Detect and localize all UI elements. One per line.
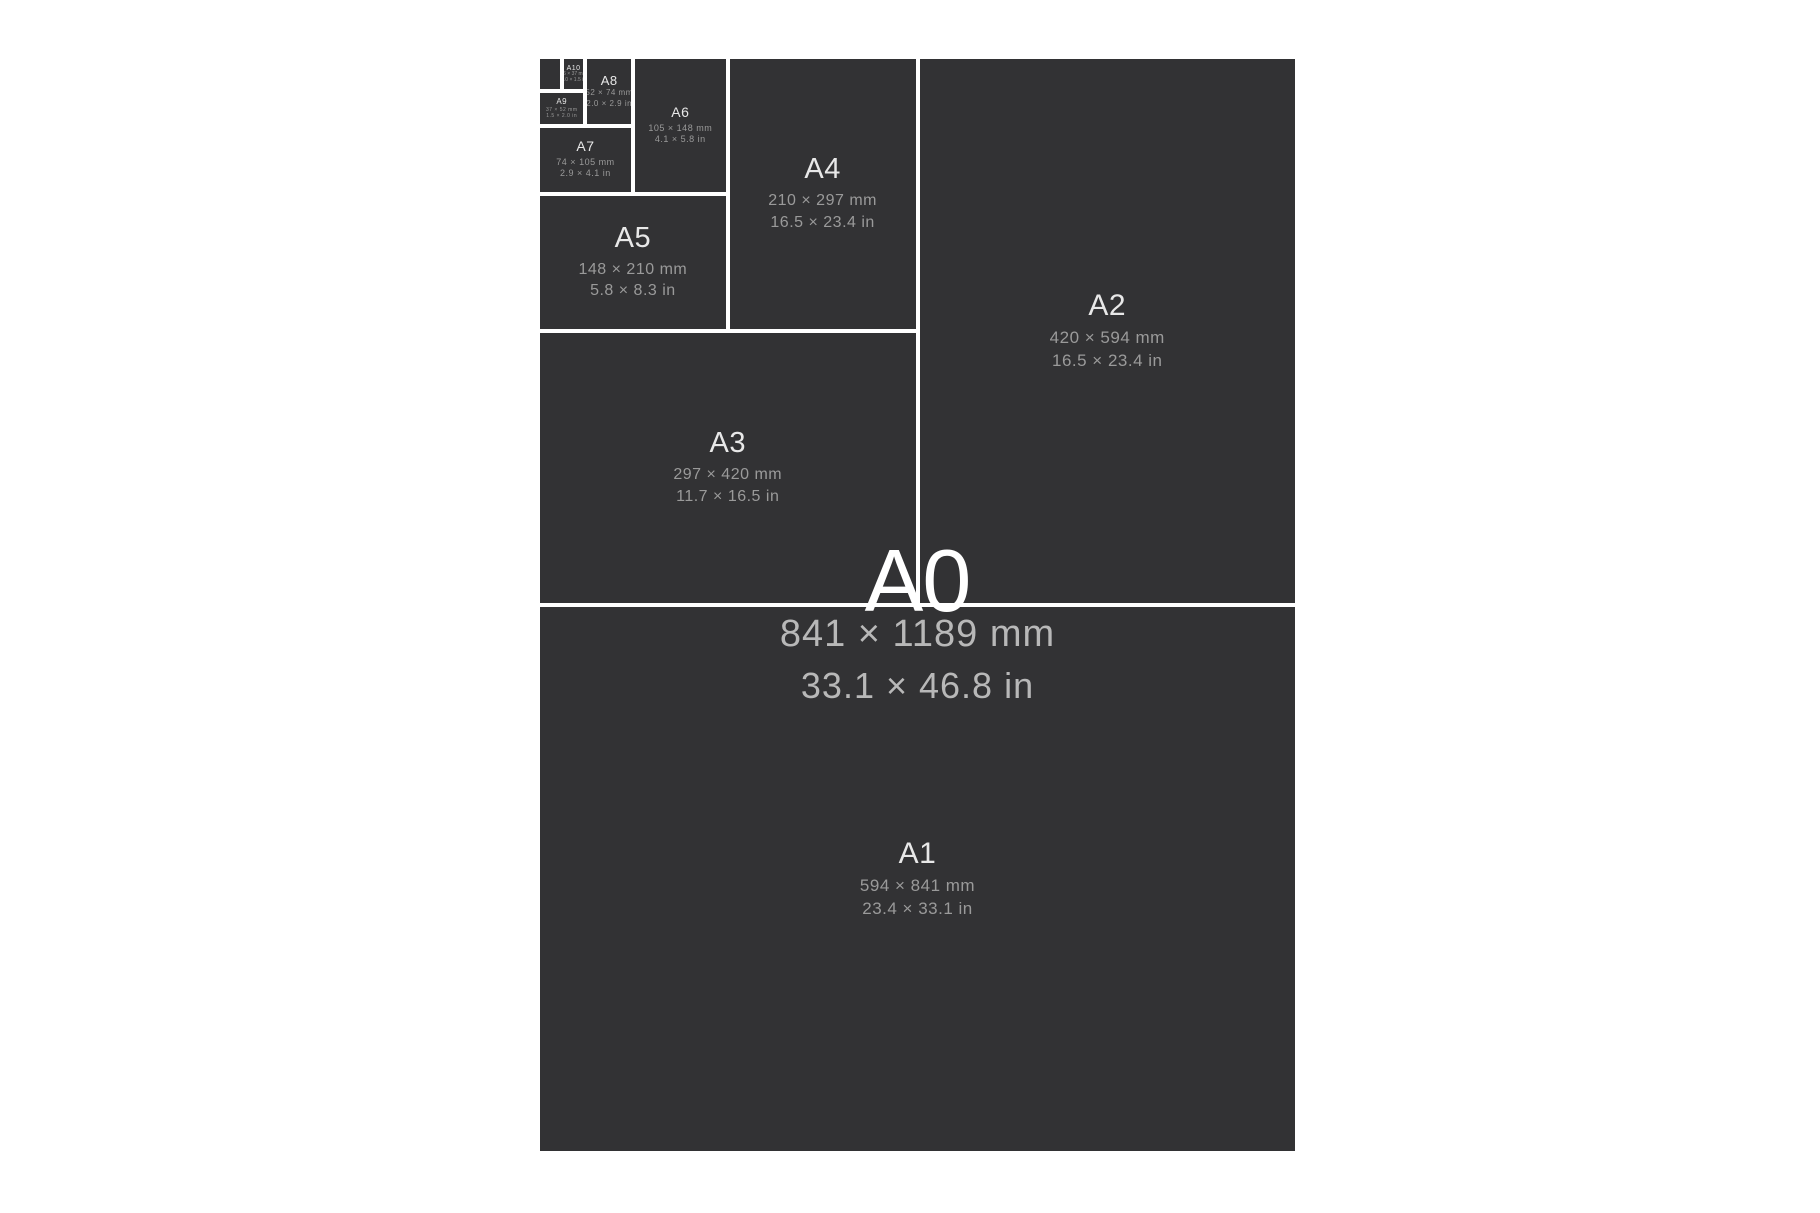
sheet-a7-label: A7: [576, 139, 594, 154]
a-series-paper-size-diagram: A1 594 × 841 mm 23.4 × 33.1 in A2 420 × …: [538, 57, 1297, 1153]
sheet-a2-label: A2: [1088, 289, 1126, 324]
sheet-a4-label: A4: [804, 154, 840, 186]
sheet-a7-inches: 2.9 × 4.1 in: [560, 168, 611, 180]
sheet-smallest-unlabeled: [538, 57, 562, 91]
sheet-a8-label: A8: [601, 74, 618, 88]
sheet-a9-label: A9: [556, 98, 567, 107]
sheet-a0-label: A0: [865, 537, 971, 625]
sheet-a7: A7 74 × 105 mm 2.9 × 4.1 in: [538, 126, 633, 195]
sheet-a2-inches: 16.5 × 23.4 in: [1052, 350, 1163, 373]
sheet-a2: A2 420 × 594 mm 16.5 × 23.4 in: [918, 57, 1298, 605]
sheet-a10-inches: 1.0 × 1.5 in: [562, 78, 586, 84]
sheet-a8-mm: 52 × 74 mm: [585, 88, 632, 98]
sheet-a8: A8 52 × 74 mm 2.0 × 2.9 in: [585, 57, 632, 126]
sheet-a6-mm: 105 × 148 mm: [648, 123, 712, 135]
sheet-a10: A10 26 × 37 mm 1.0 × 1.5 in: [562, 57, 586, 91]
sheet-a2-mm: 420 × 594 mm: [1050, 327, 1165, 350]
sheet-a0-inches: 33.1 × 46.8 in: [801, 665, 1034, 707]
sheet-a3: A3 297 × 420 mm 11.7 × 16.5 in: [538, 331, 918, 605]
sheet-a6-label: A6: [671, 105, 689, 120]
sheet-a3-mm: 297 × 420 mm: [673, 464, 782, 486]
sheet-a5-label: A5: [615, 223, 651, 255]
sheet-a6: A6 105 × 148 mm 4.1 × 5.8 in: [633, 57, 728, 194]
sheet-a5-inches: 5.8 × 8.3 in: [590, 280, 676, 302]
sheet-a9: A9 37 × 52 mm 1.5 × 2.0 in: [538, 91, 585, 125]
sheet-a7-mm: 74 × 105 mm: [556, 157, 614, 169]
sheet-a3-inches: 11.7 × 16.5 in: [676, 486, 779, 508]
sheet-a3-label: A3: [710, 428, 746, 460]
sheet-a5: A5 148 × 210 mm 5.8 × 8.3 in: [538, 194, 728, 331]
sheet-a1-mm: 594 × 841 mm: [860, 875, 975, 898]
sheet-a5-mm: 148 × 210 mm: [579, 259, 688, 281]
sheet-a4-mm: 210 × 297 mm: [768, 190, 877, 212]
sheet-a9-inches: 1.5 × 2.0 in: [546, 113, 577, 119]
sheet-a4-inches: 16.5 × 23.4 in: [770, 212, 874, 234]
sheet-a0-mm: 841 × 1189 mm: [780, 613, 1055, 656]
sheet-a6-inches: 4.1 × 5.8 in: [655, 134, 706, 146]
sheet-a8-inches: 2.0 × 2.9 in: [586, 99, 632, 109]
sheet-a1-inches: 23.4 × 33.1 in: [862, 898, 973, 921]
sheet-a4: A4 210 × 297 mm 16.5 × 23.4 in: [728, 57, 918, 331]
sheet-a1-label: A1: [899, 837, 937, 872]
page: A1 594 × 841 mm 23.4 × 33.1 in A2 420 × …: [0, 0, 1820, 1213]
